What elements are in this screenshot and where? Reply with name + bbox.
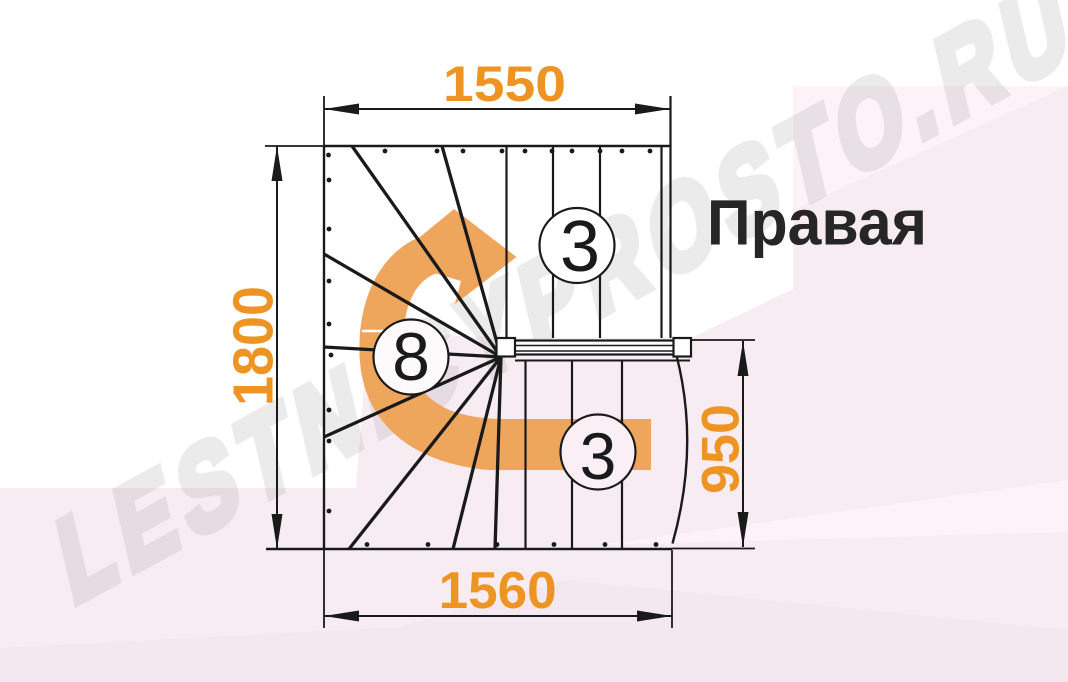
- svg-text:3: 3: [580, 419, 617, 493]
- svg-text:1550: 1550: [443, 56, 566, 112]
- svg-text:1800: 1800: [222, 286, 286, 406]
- svg-text:950: 950: [692, 404, 751, 494]
- svg-text:Правая: Правая: [707, 187, 927, 259]
- svg-text:8: 8: [392, 319, 430, 395]
- svg-text:3: 3: [560, 207, 600, 287]
- svg-text:1560: 1560: [439, 562, 557, 620]
